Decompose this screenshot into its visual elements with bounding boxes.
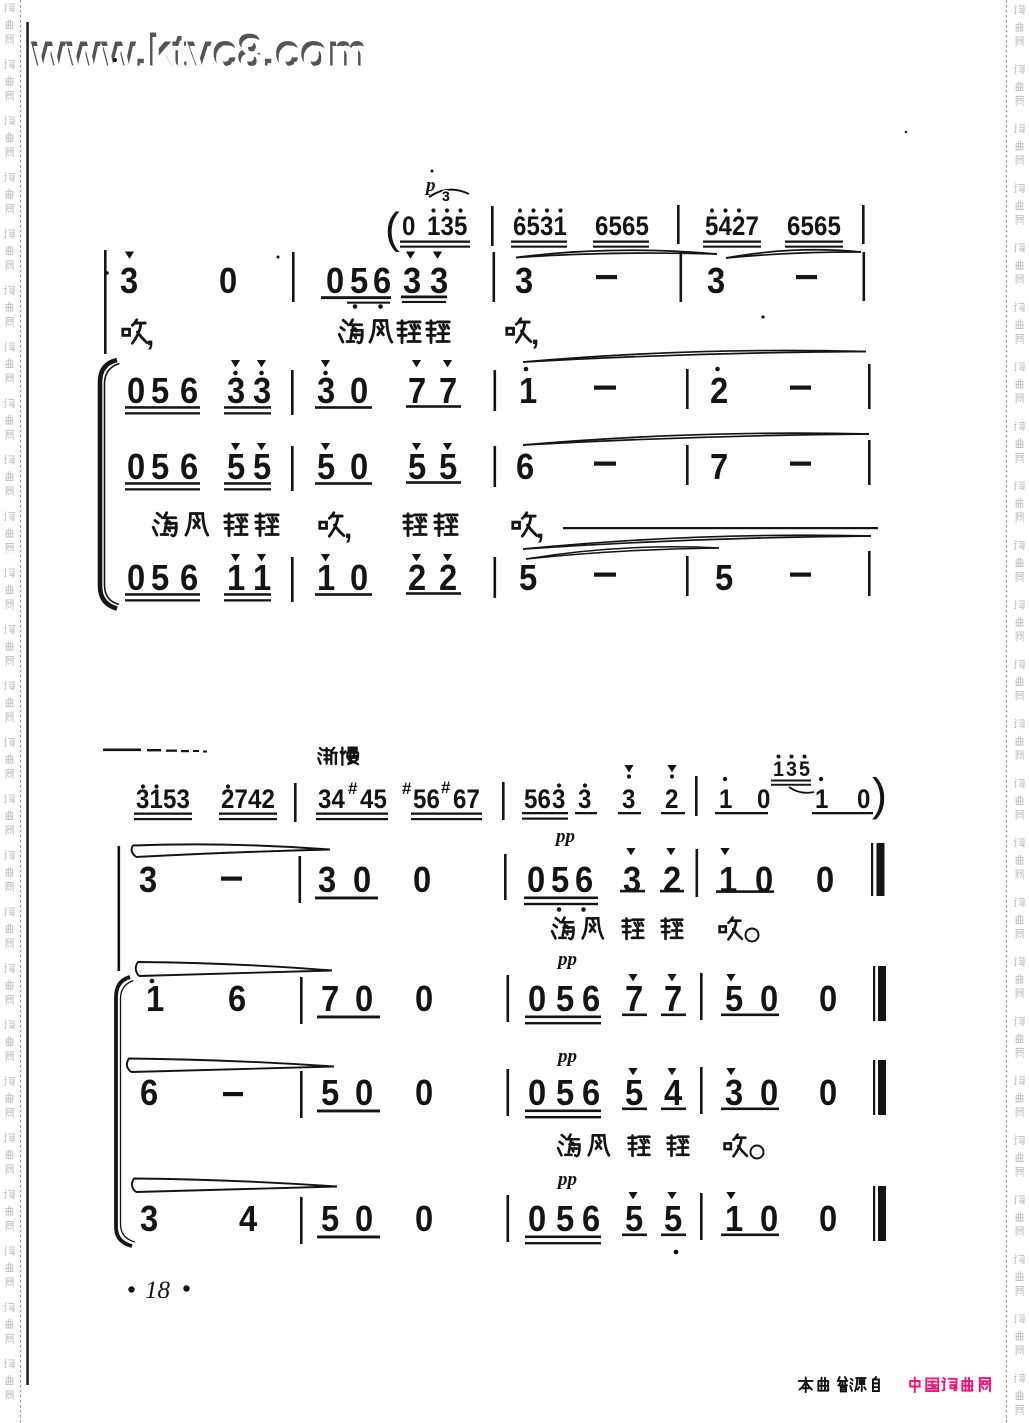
- svg-text:0: 0: [350, 446, 368, 487]
- svg-text:4: 4: [248, 784, 261, 814]
- svg-text:5: 5: [556, 1072, 574, 1113]
- svg-text:6: 6: [373, 260, 391, 301]
- svg-text:2: 2: [710, 370, 728, 411]
- svg-text:0: 0: [760, 1198, 778, 1239]
- svg-text:0: 0: [350, 557, 368, 598]
- svg-text:3: 3: [707, 260, 725, 301]
- svg-text:,: ,: [344, 512, 352, 545]
- svg-text:5: 5: [527, 211, 540, 241]
- svg-text:7: 7: [467, 784, 480, 814]
- svg-text:,: ,: [531, 318, 539, 351]
- svg-text:3: 3: [139, 859, 157, 900]
- svg-text:0: 0: [355, 1198, 373, 1239]
- svg-text:2: 2: [439, 557, 457, 598]
- svg-text:0: 0: [127, 446, 145, 487]
- svg-text:5: 5: [715, 557, 733, 598]
- svg-text:0: 0: [857, 784, 870, 814]
- svg-text:7: 7: [408, 370, 426, 411]
- svg-text:5: 5: [519, 557, 537, 598]
- svg-text:1: 1: [719, 784, 732, 814]
- svg-text:5: 5: [636, 211, 649, 241]
- svg-text:1: 1: [146, 978, 164, 1019]
- svg-text:5: 5: [408, 446, 426, 487]
- svg-text:6: 6: [582, 978, 600, 1019]
- svg-text:2: 2: [663, 859, 681, 900]
- svg-text:0: 0: [528, 1072, 546, 1113]
- svg-text:3: 3: [253, 370, 271, 411]
- svg-text:6: 6: [787, 211, 800, 241]
- svg-text:5: 5: [151, 446, 169, 487]
- svg-text:1: 1: [815, 784, 828, 814]
- svg-text:3: 3: [725, 1072, 743, 1113]
- svg-text:3: 3: [442, 188, 450, 204]
- svg-text:3: 3: [318, 784, 331, 814]
- svg-text:1: 1: [773, 758, 784, 781]
- svg-text:0: 0: [755, 859, 773, 900]
- svg-text:5: 5: [439, 446, 457, 487]
- svg-text:5: 5: [413, 784, 426, 814]
- svg-text:6: 6: [582, 1072, 600, 1113]
- svg-text:7: 7: [321, 978, 339, 1019]
- svg-text:5: 5: [664, 1198, 682, 1239]
- svg-text:3: 3: [578, 784, 591, 814]
- svg-text:6: 6: [180, 370, 198, 411]
- svg-text:6: 6: [180, 557, 198, 598]
- svg-text:0: 0: [350, 370, 368, 411]
- svg-text:4: 4: [332, 784, 345, 814]
- svg-text:4: 4: [360, 784, 373, 814]
- svg-text:0: 0: [760, 1072, 778, 1113]
- svg-text:5: 5: [227, 446, 245, 487]
- svg-text:5: 5: [828, 211, 841, 241]
- svg-text:3: 3: [515, 260, 533, 301]
- svg-text:pp: pp: [556, 949, 577, 970]
- svg-text:6: 6: [427, 784, 440, 814]
- svg-text:3: 3: [786, 758, 797, 781]
- svg-text:5: 5: [321, 1072, 339, 1113]
- svg-text:6: 6: [582, 1198, 600, 1239]
- svg-text:5: 5: [801, 211, 814, 241]
- svg-text:3: 3: [177, 784, 190, 814]
- svg-text:0: 0: [757, 784, 770, 814]
- svg-text:pp: pp: [556, 1046, 577, 1067]
- svg-text:0: 0: [528, 1198, 546, 1239]
- svg-text:5: 5: [350, 260, 368, 301]
- svg-text:6: 6: [595, 211, 608, 241]
- svg-text:4: 4: [719, 211, 732, 241]
- svg-text:1: 1: [554, 211, 567, 241]
- svg-text:2: 2: [408, 557, 426, 598]
- svg-text:(: (: [385, 204, 400, 253]
- svg-text:0: 0: [819, 1072, 837, 1113]
- svg-text:0: 0: [355, 978, 373, 1019]
- svg-text:1: 1: [725, 1198, 743, 1239]
- svg-text:3: 3: [317, 370, 335, 411]
- svg-text:5: 5: [551, 859, 569, 900]
- svg-text:0: 0: [528, 978, 546, 1019]
- svg-text:5: 5: [151, 370, 169, 411]
- svg-text:5: 5: [524, 784, 537, 814]
- svg-text:6: 6: [180, 446, 198, 487]
- svg-text:p: p: [424, 175, 436, 196]
- svg-text:7: 7: [625, 978, 643, 1019]
- svg-text:5: 5: [799, 758, 810, 781]
- svg-text:0: 0: [355, 1072, 373, 1113]
- svg-text:5: 5: [163, 784, 176, 814]
- svg-text:1: 1: [317, 557, 335, 598]
- svg-text:18: 18: [145, 1277, 171, 1304]
- svg-text:3: 3: [403, 260, 421, 301]
- svg-text:1: 1: [427, 211, 440, 241]
- svg-text:3: 3: [441, 211, 454, 241]
- svg-text:0: 0: [219, 260, 237, 301]
- svg-text:7: 7: [746, 211, 759, 241]
- svg-text:0: 0: [819, 978, 837, 1019]
- svg-text:): ): [872, 769, 887, 820]
- svg-text:0: 0: [127, 557, 145, 598]
- svg-text:www.ktvc8.com: www.ktvc8.com: [33, 29, 370, 80]
- svg-text:1: 1: [719, 859, 737, 900]
- svg-text:5: 5: [321, 1198, 339, 1239]
- svg-text:6: 6: [453, 784, 466, 814]
- svg-text:0: 0: [127, 370, 145, 411]
- svg-text:pp: pp: [556, 1169, 577, 1190]
- svg-text:,: ,: [146, 319, 154, 352]
- svg-text:3: 3: [430, 260, 448, 301]
- svg-text:0: 0: [415, 978, 433, 1019]
- svg-text:1: 1: [227, 557, 245, 598]
- svg-text:3: 3: [227, 370, 245, 411]
- svg-text:0: 0: [353, 859, 371, 900]
- svg-text:5: 5: [374, 784, 387, 814]
- svg-text:6: 6: [513, 211, 526, 241]
- svg-text:6: 6: [538, 784, 551, 814]
- svg-text:0: 0: [760, 978, 778, 1019]
- svg-text:6: 6: [228, 978, 246, 1019]
- svg-text:3: 3: [540, 211, 553, 241]
- svg-text:2: 2: [665, 784, 678, 814]
- svg-text:0: 0: [415, 1072, 433, 1113]
- svg-text:pp: pp: [554, 826, 575, 847]
- svg-text:0: 0: [326, 260, 344, 301]
- svg-text:3: 3: [120, 260, 138, 301]
- svg-text:3: 3: [623, 859, 641, 900]
- svg-text:5: 5: [556, 1198, 574, 1239]
- svg-text:2: 2: [262, 784, 275, 814]
- svg-text:#: #: [441, 778, 451, 797]
- svg-text:5: 5: [253, 446, 271, 487]
- svg-text:5: 5: [609, 211, 622, 241]
- svg-text:2: 2: [732, 211, 745, 241]
- svg-text:7: 7: [235, 784, 248, 814]
- svg-text:6: 6: [575, 859, 593, 900]
- svg-text:0: 0: [402, 211, 415, 241]
- svg-text:3: 3: [318, 859, 336, 900]
- svg-text:1: 1: [253, 557, 271, 598]
- svg-text:1: 1: [519, 370, 537, 411]
- svg-text:7: 7: [710, 446, 728, 487]
- svg-text:4: 4: [239, 1198, 257, 1239]
- svg-text:4: 4: [664, 1072, 682, 1113]
- svg-text:6: 6: [516, 446, 534, 487]
- svg-text:5: 5: [625, 1072, 643, 1113]
- svg-text:6: 6: [814, 211, 827, 241]
- svg-text:,: ,: [536, 512, 544, 545]
- svg-text:3: 3: [622, 784, 635, 814]
- svg-text:#: #: [348, 779, 358, 798]
- svg-text:5: 5: [454, 211, 467, 241]
- svg-text:0: 0: [413, 859, 431, 900]
- svg-text:5: 5: [317, 446, 335, 487]
- svg-text:5: 5: [556, 978, 574, 1019]
- svg-text:0: 0: [816, 859, 834, 900]
- svg-text:3: 3: [140, 1198, 158, 1239]
- svg-text:5: 5: [705, 211, 718, 241]
- svg-text:6: 6: [140, 1072, 158, 1113]
- svg-text:0: 0: [415, 1198, 433, 1239]
- svg-text:5: 5: [151, 557, 169, 598]
- svg-text:#: #: [402, 779, 412, 798]
- svg-text:5: 5: [725, 978, 743, 1019]
- svg-text:3: 3: [552, 784, 565, 814]
- svg-text:5: 5: [625, 1198, 643, 1239]
- svg-text:7: 7: [439, 370, 457, 411]
- svg-text:0: 0: [527, 859, 545, 900]
- svg-text:6: 6: [622, 211, 635, 241]
- svg-text:0: 0: [819, 1198, 837, 1239]
- svg-text:7: 7: [664, 978, 682, 1019]
